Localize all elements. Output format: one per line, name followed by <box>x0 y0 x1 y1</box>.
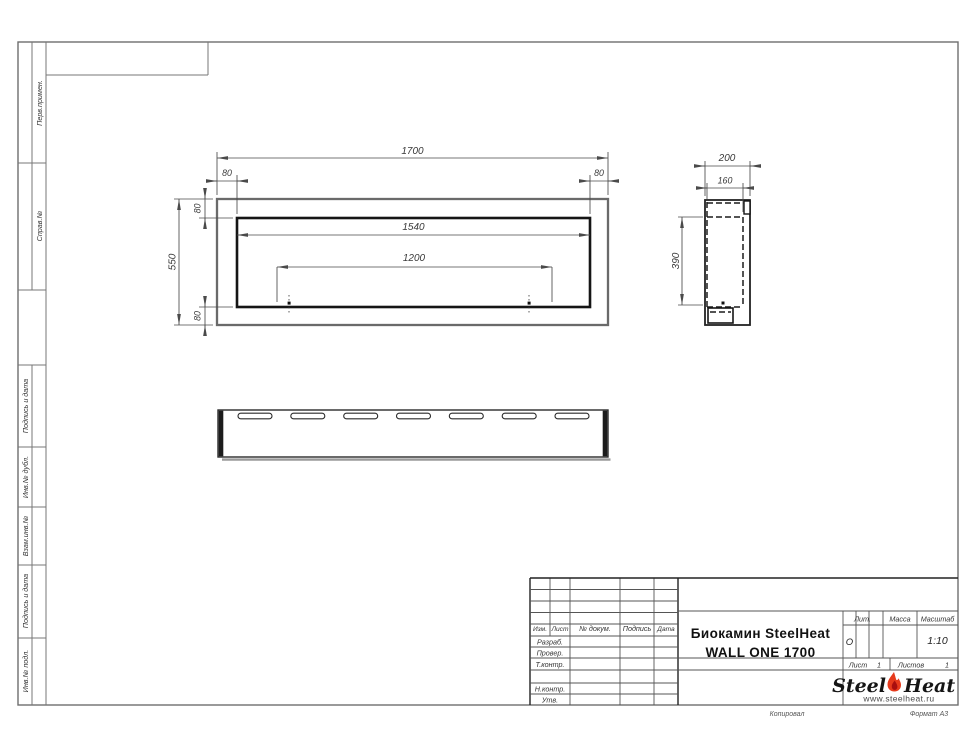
margin-stamps: Перв.примен. Справ.№ Подпись и дата Инв.… <box>18 42 46 705</box>
scale-label: Масштаб <box>921 615 956 624</box>
scale-value: 1:10 <box>927 635 948 647</box>
row-nkontr: Н.контр. <box>535 685 565 694</box>
dim-front-margin-top: 80 <box>193 204 203 214</box>
dim-side-inner-depth: 160 <box>718 176 733 186</box>
dim-front-height: 550 <box>168 253 179 270</box>
sheet-label: Лист <box>848 661 868 670</box>
col-izm: Изм. <box>533 626 547 633</box>
steelheat-logo: Steel Heat www.steelheat.ru <box>832 672 955 704</box>
footer-format-label: Формат А3 <box>910 711 948 718</box>
drawing-sheet: Перв.примен. Справ.№ Подпись и дата Инв.… <box>0 0 970 749</box>
row-tkontr: Т.контр. <box>536 660 565 669</box>
vent-slot <box>238 413 272 419</box>
lit-value: О <box>846 637 854 648</box>
margin-label-podpis-data-2: Подпись и дата <box>21 574 30 628</box>
side-view <box>705 200 750 325</box>
bottom-view <box>218 410 611 460</box>
lit-label: Лит. <box>853 615 871 624</box>
burner-mark-left <box>288 302 291 305</box>
logo-site-url: www.steelheat.ru <box>862 694 934 704</box>
row-prover: Провер. <box>537 649 564 658</box>
vent-slot <box>502 413 536 419</box>
vent-slot <box>397 413 431 419</box>
bottom-view-left-cap <box>219 411 224 457</box>
flame-icon <box>888 672 902 692</box>
vent-slot <box>449 413 483 419</box>
side-view-burner-box <box>708 308 733 323</box>
margin-label-podpis-data-1: Подпись и дата <box>21 379 30 433</box>
sheets-label: Листов <box>897 661 924 670</box>
dim-front-margin-right: 80 <box>594 168 604 178</box>
mass-label: Масса <box>889 615 910 624</box>
dim-front-width: 1700 <box>401 146 424 157</box>
margin-label-vzam-inv: Взам.инв.№ <box>21 516 30 557</box>
col-sign: Подпись <box>623 624 652 633</box>
side-burner-mark <box>722 302 725 305</box>
dim-front-burner-width: 1200 <box>403 253 426 264</box>
row-razrab: Разраб. <box>537 638 563 647</box>
sheet-footer: Копировал Формат А3 <box>770 711 949 718</box>
margin-label-inv-dubl: Инв.№ дубл. <box>21 456 30 498</box>
col-date: Дата <box>656 626 675 633</box>
dim-front-inner-width: 1540 <box>402 222 425 233</box>
dim-front-margin-left: 80 <box>222 168 232 178</box>
bottom-view-right-cap <box>603 411 608 457</box>
margin-label-perv-primen: Перв.примен. <box>35 80 44 126</box>
vent-slot <box>291 413 325 419</box>
product-name-line1: Биокамин SteelHeat <box>691 626 831 641</box>
dim-side-depth: 200 <box>718 153 736 164</box>
side-view-dimensions: 200 160 390 <box>671 153 761 305</box>
footer-copied-label: Копировал <box>770 711 805 718</box>
col-list: Лист <box>551 626 569 633</box>
burner-mark-right <box>528 302 531 305</box>
sheet-value: 1 <box>877 661 881 670</box>
dim-side-inner-height: 390 <box>671 252 682 269</box>
row-utv: Утв. <box>541 696 558 705</box>
margin-label-inv-podl: Инв.№ подл. <box>21 650 30 693</box>
product-name-line2: WALL ONE 1700 <box>706 645 816 660</box>
drawing-svg: Перв.примен. Справ.№ Подпись и дата Инв.… <box>0 0 970 749</box>
dim-front-margin-bottom: 80 <box>193 311 203 321</box>
sheets-value: 1 <box>945 661 949 670</box>
margin-label-sprav-no: Справ.№ <box>35 210 44 241</box>
vent-slot <box>555 413 589 419</box>
vent-slot <box>344 413 378 419</box>
sheet-frame <box>18 42 958 705</box>
side-view-bracket <box>744 201 750 214</box>
col-doc: № докум. <box>579 624 611 633</box>
